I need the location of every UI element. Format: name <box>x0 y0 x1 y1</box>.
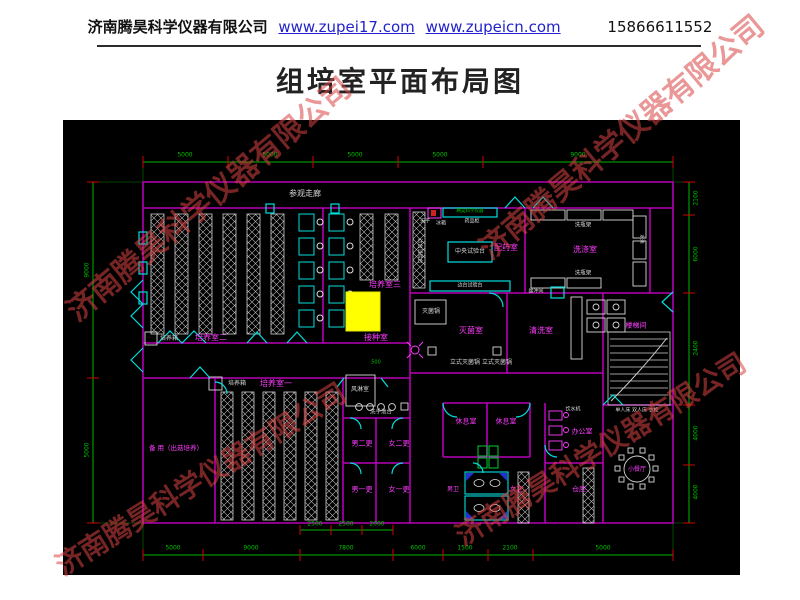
label-medicine-cabinet: 药品柜 <box>464 220 479 225</box>
label-culture-room-3: 培养室三 <box>369 281 401 289</box>
label-incubator-a: 培养箱 <box>160 336 178 342</box>
label-change-m2: 男二更 <box>352 441 373 448</box>
label-wc-men: 男卫 <box>447 487 459 493</box>
dim-top: 5000 <box>262 152 277 159</box>
label-dining-room: 小餐厅 <box>628 467 646 473</box>
label-washing-room: 清洗室 <box>529 327 553 335</box>
dim-right: 2400 <box>693 340 700 355</box>
label-balance: 天平 <box>420 220 430 225</box>
label-central-bench: 中央试验台 <box>455 249 485 255</box>
floorplan-drawing <box>63 120 740 575</box>
label-change-f1: 女一更 <box>389 487 410 494</box>
company-name: 济南腾昊科学仪器有限公司 <box>88 18 268 36</box>
label-banner-strip: 腾昊科学仪器 <box>457 210 484 215</box>
label-change-m1: 男一更 <box>352 487 373 494</box>
office-desks <box>549 411 569 450</box>
label-sterilizer-pot: 灭菌锅 <box>422 309 440 315</box>
dim-sub: 2500 <box>307 521 322 528</box>
page: { "header": { "company": "济南腾昊科学仪器有限公司",… <box>0 0 800 600</box>
culture-racks-room3 <box>360 214 398 280</box>
label-side-bench-h: 边台试验台 <box>457 284 482 289</box>
highlight-clean-bench <box>346 292 380 331</box>
label-air-shower: 风淋室 <box>351 387 369 393</box>
dim-right: 6000 <box>693 246 700 261</box>
header-rule <box>97 45 701 47</box>
label-autoclaves: 立式灭菌锅 立式灭菌锅 <box>450 360 512 366</box>
label-storage: 仓库 <box>572 487 586 494</box>
label-spare-room: 备 用（出菇培养） <box>149 445 203 452</box>
link-zupei17[interactable]: www.zupei17.com <box>278 18 414 36</box>
label-culture-room-1: 培养室一 <box>260 380 292 388</box>
label-fridge: 冰箱 <box>436 222 446 227</box>
label-change-f2: 女二更 <box>389 441 410 448</box>
label-buffer-box: 缓冲间 <box>528 290 543 295</box>
link-zupeicn[interactable]: www.zupeicn.com <box>426 18 561 36</box>
label-bottle-rack-2: 洗瓶架 <box>575 271 592 277</box>
label-office: 办公室 <box>572 429 593 436</box>
dim-bottom: 5000 <box>595 545 610 552</box>
dim-right: 2100 <box>693 190 700 205</box>
dim-top: 5000 <box>432 152 447 159</box>
label-side-bench-v: 边台试验台 <box>417 238 422 263</box>
label-rest-room-2: 休息室 <box>496 419 517 426</box>
label-wc-women: 女卫 <box>510 487 522 493</box>
clean-benches <box>299 214 353 327</box>
label-sink-v: 水池 <box>638 235 643 244</box>
cad-canvas: 参观走廊培养室二培养室三培养室一培养箱培养箱接种室灭菌室清洗室楼梯间配药室洗涤室… <box>63 120 740 575</box>
culture-racks-room1 <box>221 392 338 520</box>
label-inoculation-room: 接种室 <box>364 334 388 342</box>
label-rest-room-1: 休息室 <box>456 419 477 426</box>
label-sterilize-room: 灭菌室 <box>459 327 483 335</box>
dim-bottom: 9000 <box>243 545 258 552</box>
header: 济南腾昊科学仪器有限公司 www.zupei17.com www.zupeicn… <box>0 16 800 37</box>
label-bottle-rack-1: 洗瓶架 <box>575 223 592 229</box>
label-hand-sink-row: 洗手池台 <box>370 410 392 416</box>
label-water-dispenser: 饮水机 <box>565 408 580 413</box>
label-visit-corridor: 参观走廊 <box>289 190 321 198</box>
label-rinse-room: 洗涤室 <box>573 246 597 254</box>
dim-top: 5000 <box>177 152 192 159</box>
dim-sub: 2000 <box>369 521 384 528</box>
dim-bottom: 5000 <box>165 545 180 552</box>
dim-sub: 2500 <box>338 521 353 528</box>
dim-right: 4000 <box>693 484 700 499</box>
dim-bottom: 7800 <box>338 545 353 552</box>
culture-racks-room2 <box>151 214 284 334</box>
dim-right: 4000 <box>693 425 700 440</box>
label-inner-dim-500: 500 <box>371 361 381 366</box>
dim-top: 9000 <box>570 152 585 159</box>
stairs <box>608 332 670 405</box>
dim-bottom: 2100 <box>502 545 517 552</box>
label-stair-room: 楼梯间 <box>626 323 647 330</box>
phone-number: 15866611552 <box>607 18 712 36</box>
dim-bottom: 1500 <box>457 545 472 552</box>
media-room-benches <box>430 208 564 298</box>
dim-top: 5000 <box>347 152 362 159</box>
brand-logo-box <box>428 208 441 218</box>
truss-columns <box>518 468 594 523</box>
label-culture-room-2: 培养室二 <box>195 334 227 342</box>
label-media-prep-room: 配药室 <box>494 244 518 252</box>
page-title: 组培室平面布局图 <box>0 60 800 100</box>
dim-bottom: 6000 <box>410 545 425 552</box>
dim-left: 5000 <box>84 442 91 457</box>
dim-left: 9000 <box>84 262 91 277</box>
label-incubator-b: 培养箱 <box>228 381 246 387</box>
label-furniture-note: 单人床 双人床 衣柜 <box>615 409 658 414</box>
